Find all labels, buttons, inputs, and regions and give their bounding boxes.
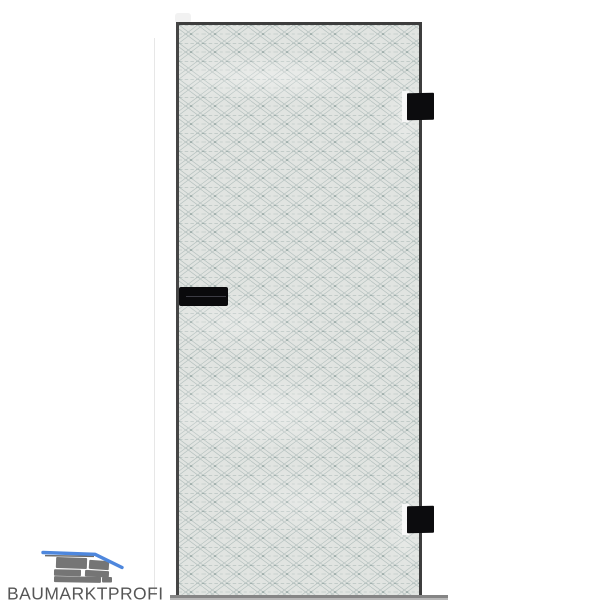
svg-text:BAUMARKTPROFI: BAUMARKTPROFI (7, 583, 164, 600)
